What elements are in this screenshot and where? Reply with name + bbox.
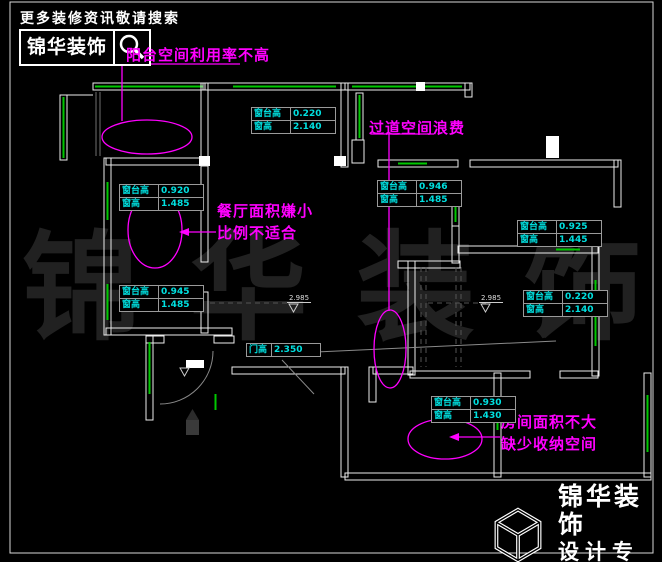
tag-label: 窗高 [378, 194, 416, 206]
tag-value: 2.350 [272, 344, 320, 356]
tag-value: 0.925 [557, 221, 601, 233]
tag-label: 窗台高 [518, 221, 556, 233]
tag-value: 1.485 [159, 299, 203, 311]
search-hint-text: 更多装修资讯敬请搜索 [20, 8, 180, 28]
annotation-dining-line2: 比例不适合 [217, 222, 313, 244]
tag-label: 窗台高 [120, 185, 158, 197]
window-tag-left-lower: 窗台高 0.945 窗高 1.485 [119, 285, 204, 312]
elevation-marker: 2.985 [479, 294, 503, 303]
tag-value: 2.140 [291, 121, 335, 133]
tag-label: 窗高 [120, 198, 158, 210]
tag-label: 窗高 [518, 234, 556, 246]
tag-label: 窗台高 [524, 291, 562, 303]
tag-label: 窗台高 [378, 181, 416, 193]
annotation-dining-line1: 餐厅面积嫌小 [217, 200, 313, 222]
window-tag-bottom: 窗台高 0.930 窗高 1.430 [431, 396, 516, 423]
tag-value: 0.930 [471, 397, 515, 409]
tag-label: 窗高 [252, 121, 290, 133]
tag-value: 1.445 [557, 234, 601, 246]
tag-value: 0.945 [159, 286, 203, 298]
footer-brand: 锦华装饰 [558, 483, 662, 539]
annotation-corridor: 过道空间浪费 [369, 117, 465, 139]
window-tag-left-upper: 窗台高 0.920 窗高 1.485 [119, 184, 204, 211]
tag-label: 窗高 [120, 299, 158, 311]
tag-value: 1.485 [159, 198, 203, 210]
footer-logo: 锦华装饰 设计专家 WWW.JS-JINHUA.COM [486, 483, 662, 562]
tag-label: 窗台高 [432, 397, 470, 409]
tag-label: 窗台高 [120, 286, 158, 298]
tag-label: 窗高 [432, 410, 470, 422]
tag-value: 0.220 [291, 108, 335, 120]
tag-label: 窗台高 [252, 108, 290, 120]
elevation-marker: 2.985 [287, 294, 311, 303]
tag-value: 0.946 [417, 181, 461, 193]
annotation-balcony: 阳台空间利用率不高 [126, 44, 270, 66]
tag-label: 窗高 [524, 304, 562, 316]
tag-value: 2.140 [563, 304, 607, 316]
tag-label: 门高 [247, 344, 271, 356]
cube-logo-icon [486, 505, 550, 562]
footer-tagline: 设计专家 [558, 539, 662, 562]
window-tag-top-center: 窗台高 0.220 窗高 2.140 [251, 107, 336, 134]
tag-value: 0.220 [563, 291, 607, 303]
door-height-tag: 门高 2.350 [246, 343, 321, 357]
tag-value: 0.920 [159, 185, 203, 197]
cad-floorplan-image: 锦 华 装 饰 [0, 0, 662, 562]
tag-value: 1.430 [471, 410, 515, 422]
window-tag-right-mid: 窗台高 0.220 窗高 2.140 [523, 290, 608, 317]
brand-logo-text: 锦华装饰 [21, 31, 115, 64]
window-tag-right-upper: 窗台高 0.925 窗高 1.445 [517, 220, 602, 247]
annotation-dining: 餐厅面积嫌小 比例不适合 [217, 200, 313, 244]
window-tag-center: 窗台高 0.946 窗高 1.485 [377, 180, 462, 207]
annotation-bedroom-line2: 缺少收纳空间 [501, 433, 597, 455]
floor-plan-drawing [0, 0, 662, 562]
tag-value: 1.485 [417, 194, 461, 206]
